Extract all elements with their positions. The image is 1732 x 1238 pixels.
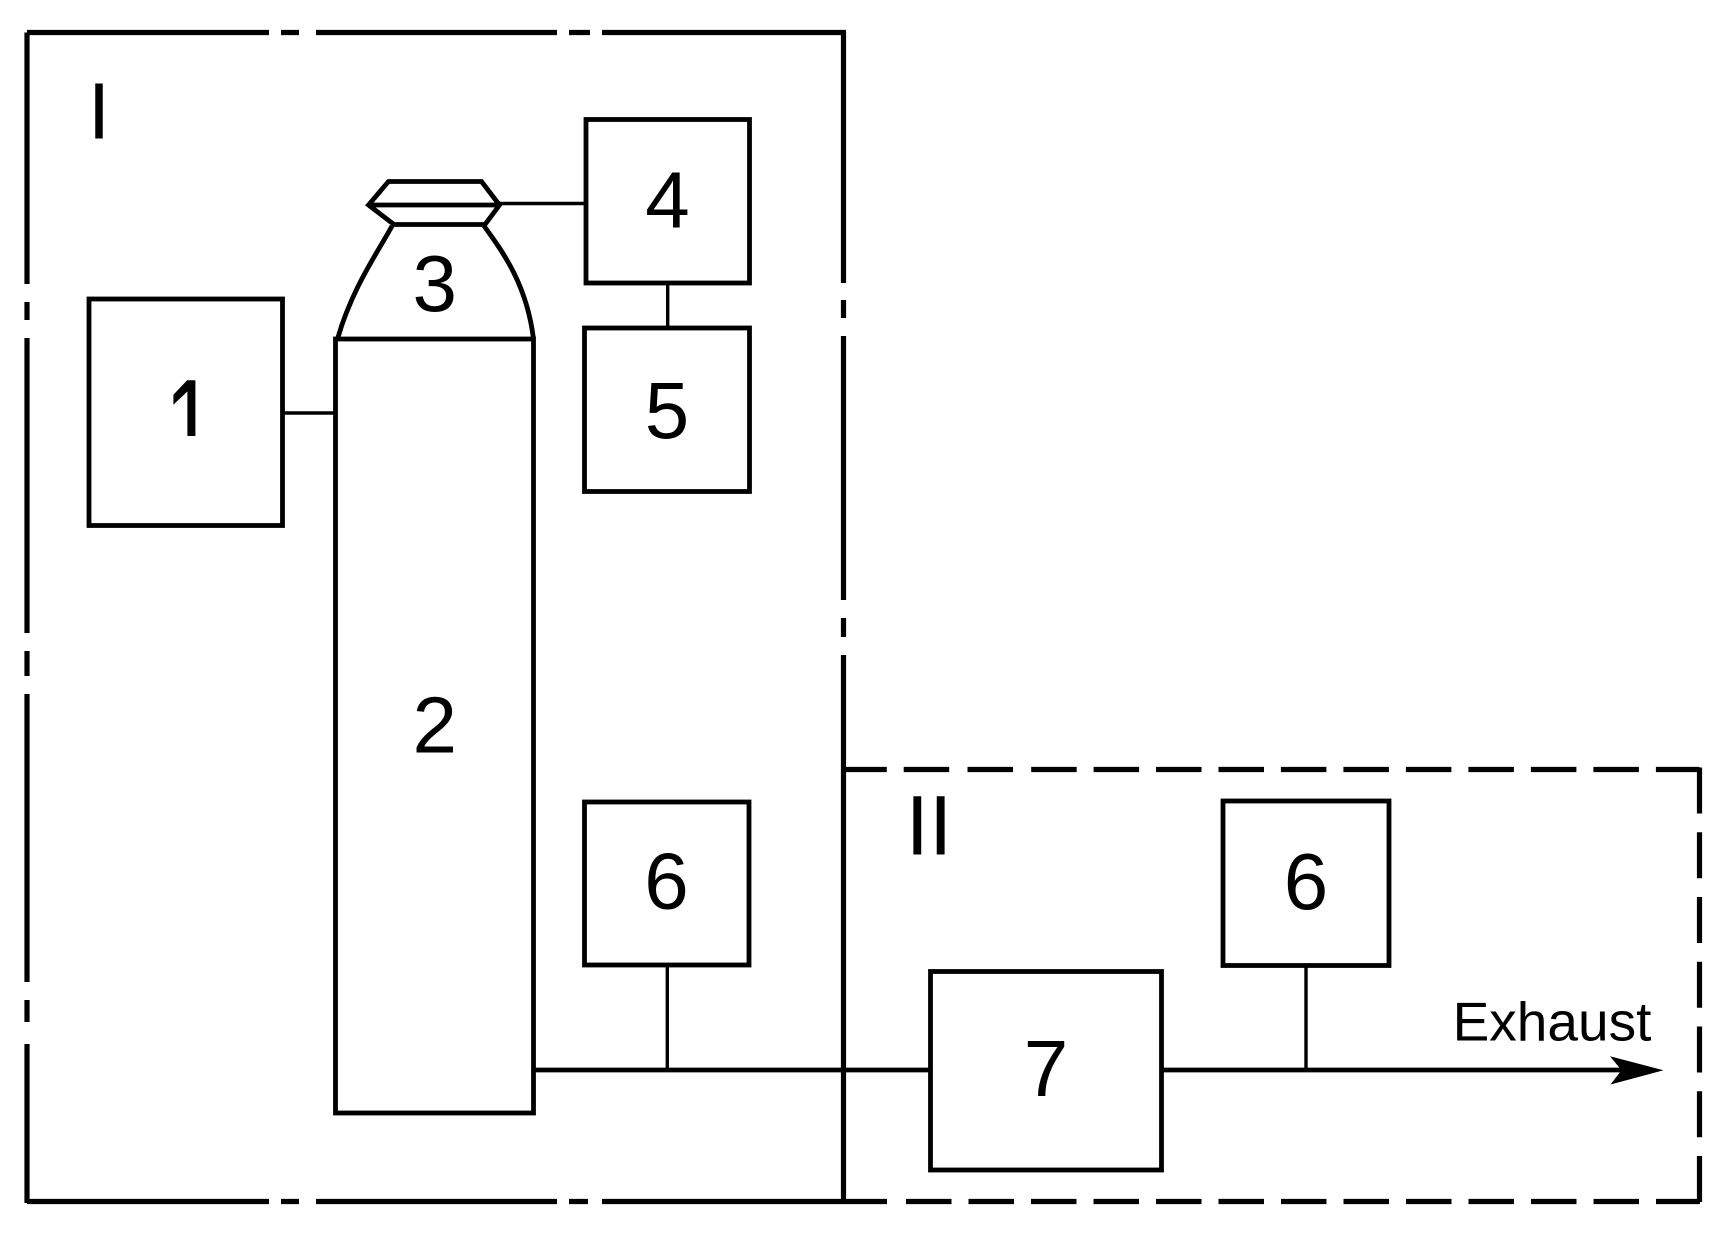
svg-text:4: 4 — [645, 156, 690, 245]
svg-text:I: I — [88, 67, 110, 156]
svg-text:Exhaust: Exhaust — [1453, 991, 1652, 1053]
svg-text:7: 7 — [1024, 1024, 1069, 1113]
svg-text:6: 6 — [1284, 837, 1329, 926]
svg-text:II: II — [906, 779, 953, 873]
svg-text:6: 6 — [644, 836, 689, 925]
svg-text:3: 3 — [412, 239, 457, 328]
svg-text:5: 5 — [645, 366, 690, 455]
svg-text:2: 2 — [412, 681, 457, 770]
